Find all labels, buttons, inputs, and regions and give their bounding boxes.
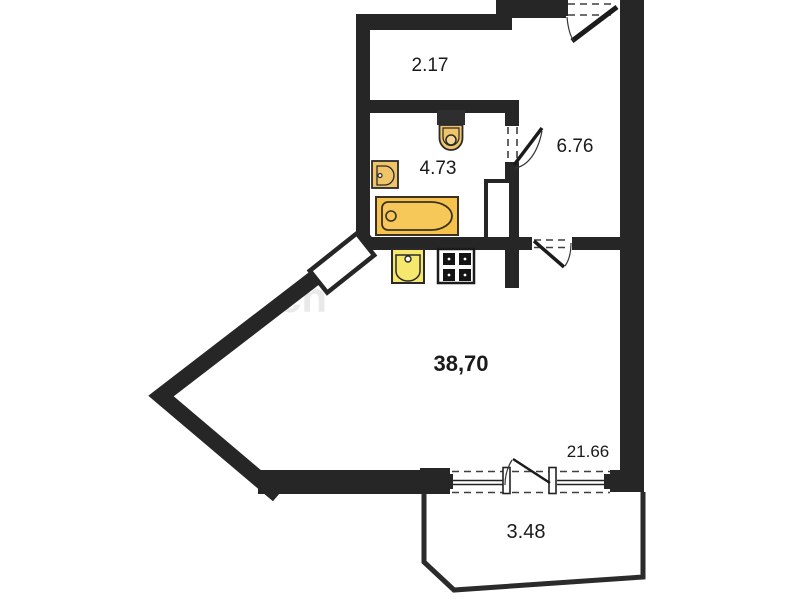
wall-left-vertical [356,14,370,250]
wall-bottom [258,470,428,494]
walls [258,0,644,494]
floor-plan-drawing: ch [0,0,800,600]
hallway-door [534,241,571,267]
label-balcony-area: 3.48 [507,521,546,543]
bathroom-door-opening-dashes [508,127,517,163]
label-living-room-area: 38,70 [433,351,488,376]
label-hallway-area: 6.76 [557,136,594,157]
label-corridor-area: 2.17 [412,55,449,76]
entry-jamb-tick [562,0,568,16]
washbasin-icon [372,161,398,188]
wall-top-corridor [356,14,512,30]
wall-top-entry [496,0,566,18]
duct-shaft [486,181,511,239]
window-glass-lines [453,481,606,485]
wall-bathroom-right-upper [505,100,519,126]
bathtub-icon [376,197,458,235]
balcony-window-dashes [452,472,610,493]
wall-right-foot [610,470,644,492]
bathroom-door [514,128,542,168]
window-post-right [604,474,613,489]
floor-plan: ch [0,0,800,600]
wall-right [620,0,644,474]
label-window-zone-area: 21.66 [567,442,610,461]
label-bathroom-area: 4.73 [420,158,457,179]
balcony-door [503,459,556,494]
entry-door [567,7,617,41]
wall-hallway-bottom [572,237,622,250]
toilet-icon [437,110,465,150]
kitchen-sink-icon [392,249,424,283]
window-post-left [444,474,453,489]
diagonal-wall-window [310,233,374,292]
stove-icon [438,249,474,283]
